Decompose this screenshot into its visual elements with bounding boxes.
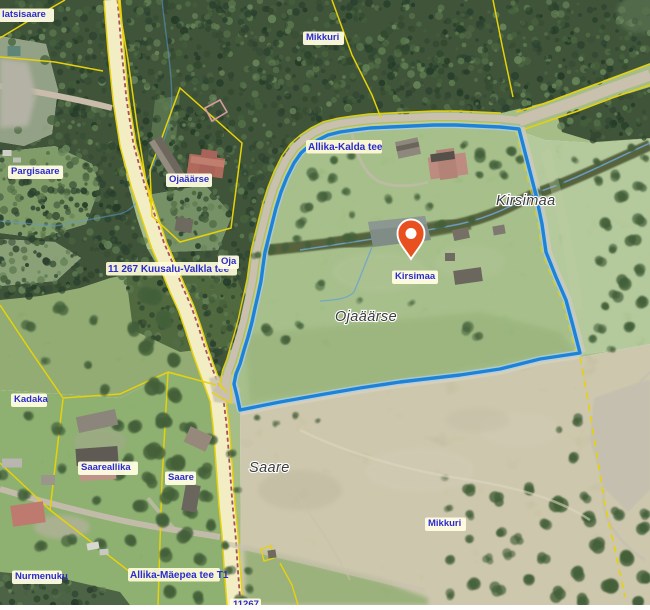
svg-text:Mikkuri: Mikkuri: [306, 32, 339, 43]
svg-text:Allika-Mäepea tee T1: Allika-Mäepea tee T1: [130, 570, 229, 581]
svg-text:latsisaare: latsisaare: [2, 9, 46, 20]
svg-text:Ojaäärse: Ojaäärse: [335, 309, 397, 325]
svg-text:Saare: Saare: [168, 472, 194, 483]
svg-text:Saare: Saare: [249, 460, 290, 476]
svg-text:Oja: Oja: [221, 256, 237, 267]
svg-text:Kirsimaa: Kirsimaa: [395, 271, 436, 282]
svg-text:Ojaäärse: Ojaäärse: [169, 174, 209, 185]
svg-text:Kadaka: Kadaka: [14, 394, 49, 405]
svg-text:Pargisaare: Pargisaare: [11, 166, 60, 177]
svg-text:Nurmenuku: Nurmenuku: [15, 571, 68, 582]
svg-text:Mikkuri: Mikkuri: [428, 518, 461, 529]
svg-text:11 267 Kuusalu-Valkla tee: 11 267 Kuusalu-Valkla tee: [108, 264, 230, 275]
svg-text:11267: 11267: [233, 599, 259, 605]
svg-text:Saareallika: Saareallika: [81, 462, 131, 473]
svg-text:Allika-Kalda tee: Allika-Kalda tee: [308, 142, 383, 153]
svg-text:Kirsimaa: Kirsimaa: [496, 193, 556, 209]
